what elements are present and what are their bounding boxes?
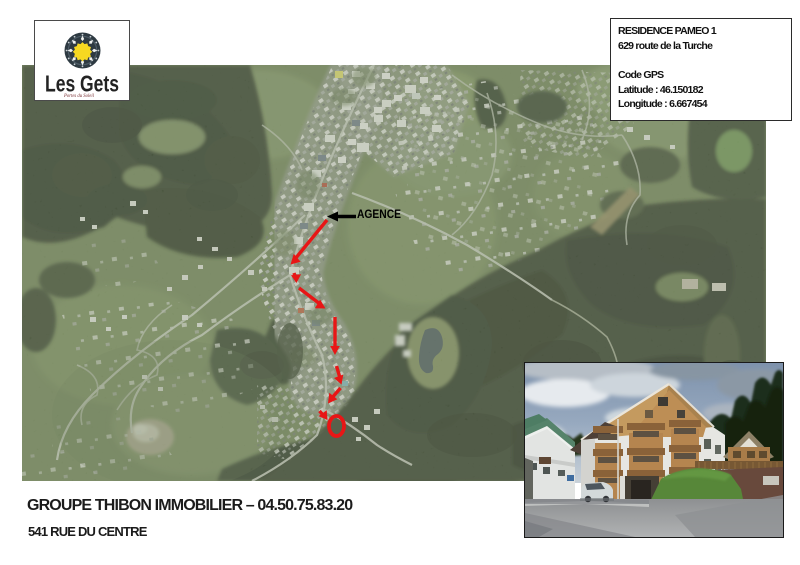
svg-text:Portes du Soleil: Portes du Soleil [63,93,94,99]
svg-text:AGENCE: AGENCE [357,209,401,221]
